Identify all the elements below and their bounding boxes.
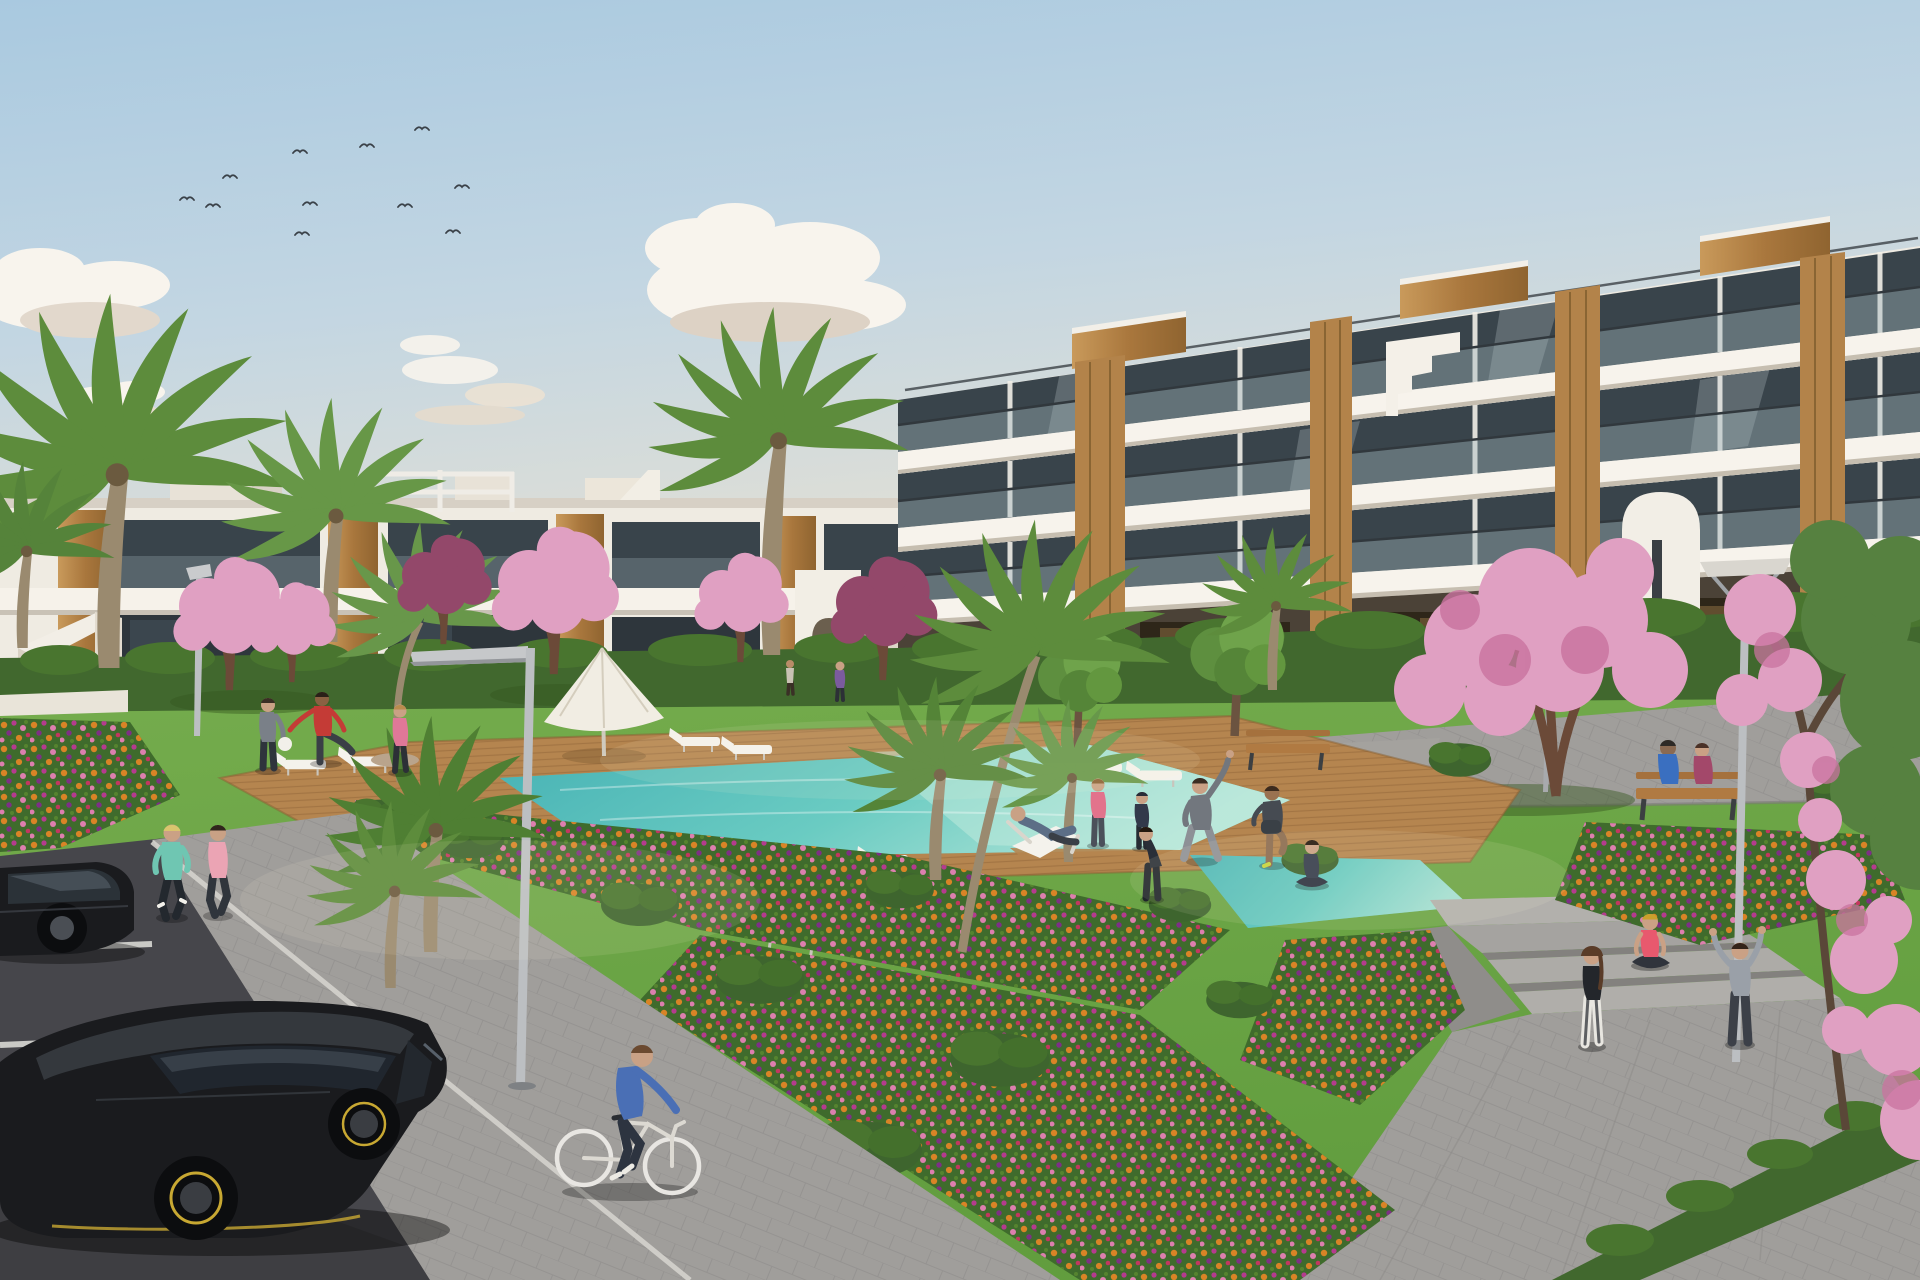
car-sedan bbox=[0, 862, 145, 964]
person-background-2 bbox=[786, 660, 794, 694]
scene-canvas bbox=[0, 0, 1920, 1280]
rendered-scene bbox=[0, 0, 1920, 1280]
person-on-bench-blue bbox=[1658, 740, 1679, 784]
car-hatchback bbox=[0, 1001, 450, 1256]
football bbox=[278, 737, 292, 751]
